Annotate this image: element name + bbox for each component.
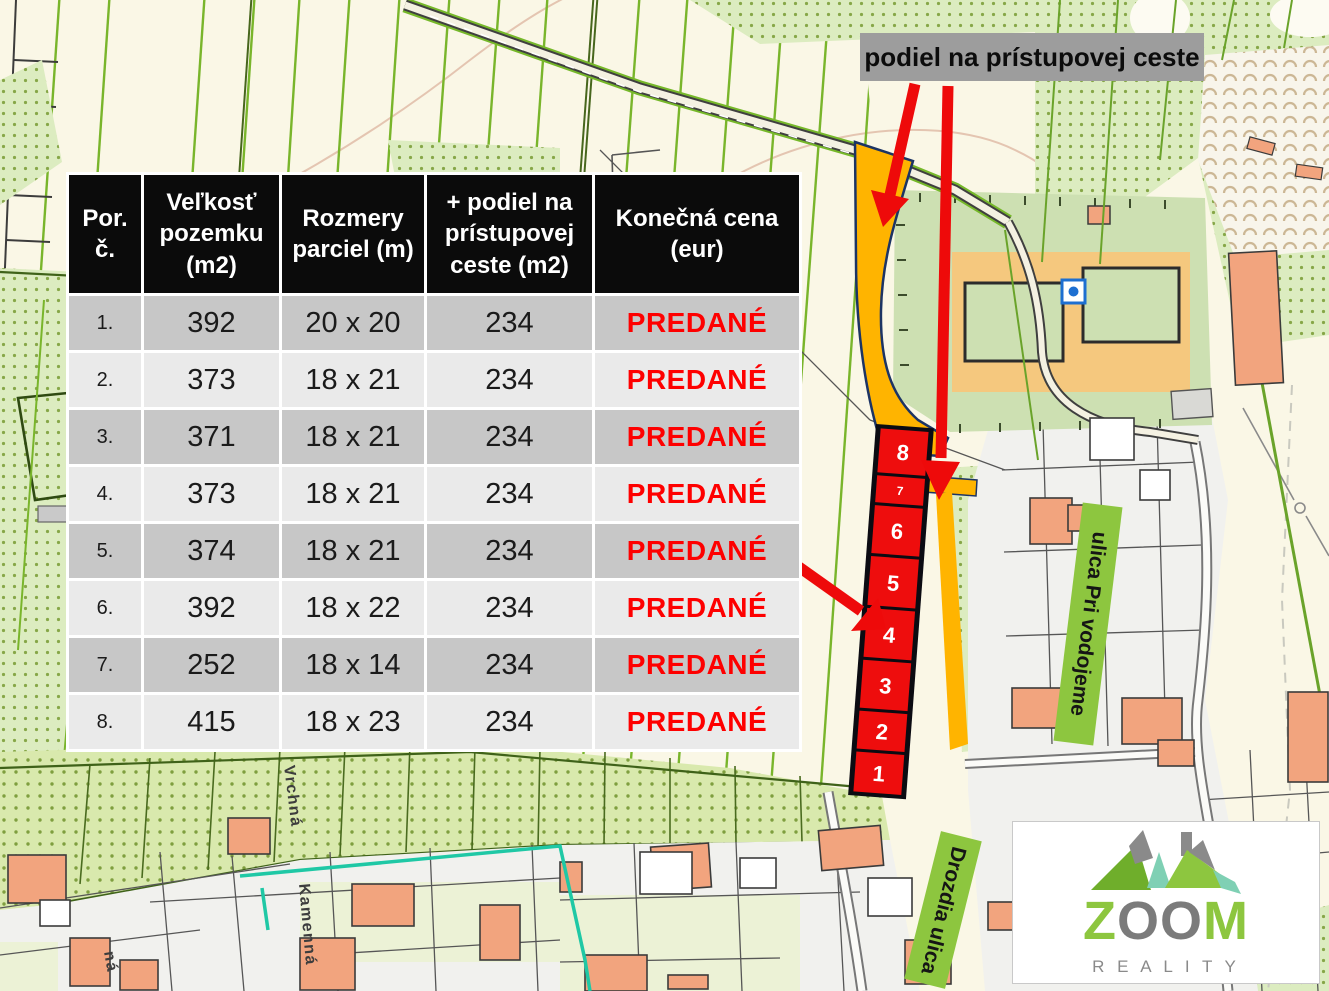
cell-dimensions: 18 x 21 — [282, 410, 424, 464]
parcel-number-5: 5 — [886, 570, 900, 596]
cell-price-status: PREDANÉ — [595, 695, 799, 749]
cell-num: 7. — [69, 638, 141, 692]
table-row: 7. 252 18 x 14 234 PREDANÉ — [69, 638, 799, 692]
logo-roof-icon — [1081, 828, 1251, 894]
cell-dimensions: 18 x 21 — [282, 524, 424, 578]
cell-price-status: PREDANÉ — [595, 467, 799, 521]
gray-shed — [1171, 389, 1213, 420]
cell-size: 373 — [144, 353, 279, 407]
logo-letter-z: Z — [1083, 891, 1117, 951]
parcel-number-3: 3 — [878, 673, 892, 699]
cell-size: 252 — [144, 638, 279, 692]
cell-size: 392 — [144, 581, 279, 635]
header-podiel: + podiel na prístupovej ceste (m2) — [427, 175, 592, 293]
cell-price-status: PREDANÉ — [595, 353, 799, 407]
cell-num: 1. — [69, 296, 141, 350]
cell-size: 415 — [144, 695, 279, 749]
cell-dimensions: 18 x 23 — [282, 695, 424, 749]
parcel-number-6: 6 — [890, 518, 904, 544]
table-row: 1. 392 20 x 20 234 PREDANÉ — [69, 296, 799, 350]
cell-road-share: 234 — [427, 581, 592, 635]
cell-dimensions: 18 x 21 — [282, 467, 424, 521]
cell-num: 5. — [69, 524, 141, 578]
cell-size: 374 — [144, 524, 279, 578]
header-por-c: Por. č. — [69, 175, 141, 293]
table-row: 5. 374 18 x 21 234 PREDANÉ — [69, 524, 799, 578]
table-row: 4. 373 18 x 21 234 PREDANÉ — [69, 467, 799, 521]
cell-num: 2. — [69, 353, 141, 407]
cell-num: 3. — [69, 410, 141, 464]
cell-size: 371 — [144, 410, 279, 464]
cell-dimensions: 18 x 21 — [282, 353, 424, 407]
parcel-number-7: 7 — [896, 484, 904, 498]
cell-price-status: PREDANÉ — [595, 638, 799, 692]
table-row: 8. 415 18 x 23 234 PREDANÉ — [69, 695, 799, 749]
cell-road-share: 234 — [427, 638, 592, 692]
small-shed — [38, 506, 68, 522]
cell-road-share: 234 — [427, 353, 592, 407]
cell-road-share: 234 — [427, 467, 592, 521]
cell-dimensions: 18 x 14 — [282, 638, 424, 692]
cell-num: 4. — [69, 467, 141, 521]
cell-price-status: PREDANÉ — [595, 410, 799, 464]
logo-wordmark: ZOOM — [1083, 894, 1249, 948]
cell-road-share: 234 — [427, 296, 592, 350]
cell-road-share: 234 — [427, 695, 592, 749]
header-velkost: Veľkosť pozemku (m2) — [144, 175, 279, 293]
header-cena: Konečná cena (eur) — [595, 175, 799, 293]
zoom-reality-logo: ZOOM R E A L I T Y — [1012, 821, 1320, 984]
cell-road-share: 234 — [427, 410, 592, 464]
table-row: 6. 392 18 x 22 234 PREDANÉ — [69, 581, 799, 635]
access-road-callout: podiel na prístupovej ceste — [860, 33, 1204, 81]
logo-letter-m: M — [1203, 891, 1249, 951]
header-rozmery: Rozmery parciel (m) — [282, 175, 424, 293]
cell-size: 392 — [144, 296, 279, 350]
parcel-number-8: 8 — [896, 440, 910, 466]
cell-dimensions: 20 x 20 — [282, 296, 424, 350]
cell-road-share: 234 — [427, 524, 592, 578]
table-header-row: Por. č. Veľkosť pozemku (m2) Rozmery par… — [69, 175, 799, 293]
parcel-price-table: Por. č. Veľkosť pozemku (m2) Rozmery par… — [66, 172, 802, 752]
table-row: 3. 371 18 x 21 234 PREDANÉ — [69, 410, 799, 464]
table-row: 2. 373 18 x 21 234 PREDANÉ — [69, 353, 799, 407]
arrow-right-line — [941, 86, 948, 458]
cell-size: 373 — [144, 467, 279, 521]
cell-price-status: PREDANÉ — [595, 581, 799, 635]
parcel-number-2: 2 — [875, 719, 889, 745]
logo-subtitle: R E A L I T Y — [1092, 957, 1240, 977]
cell-dimensions: 18 x 22 — [282, 581, 424, 635]
cell-price-status: PREDANÉ — [595, 524, 799, 578]
cell-num: 8. — [69, 695, 141, 749]
cell-num: 6. — [69, 581, 141, 635]
parcel-number-1: 1 — [872, 761, 886, 787]
logo-letters-oo: OO — [1117, 891, 1203, 951]
cell-price-status: PREDANÉ — [595, 296, 799, 350]
